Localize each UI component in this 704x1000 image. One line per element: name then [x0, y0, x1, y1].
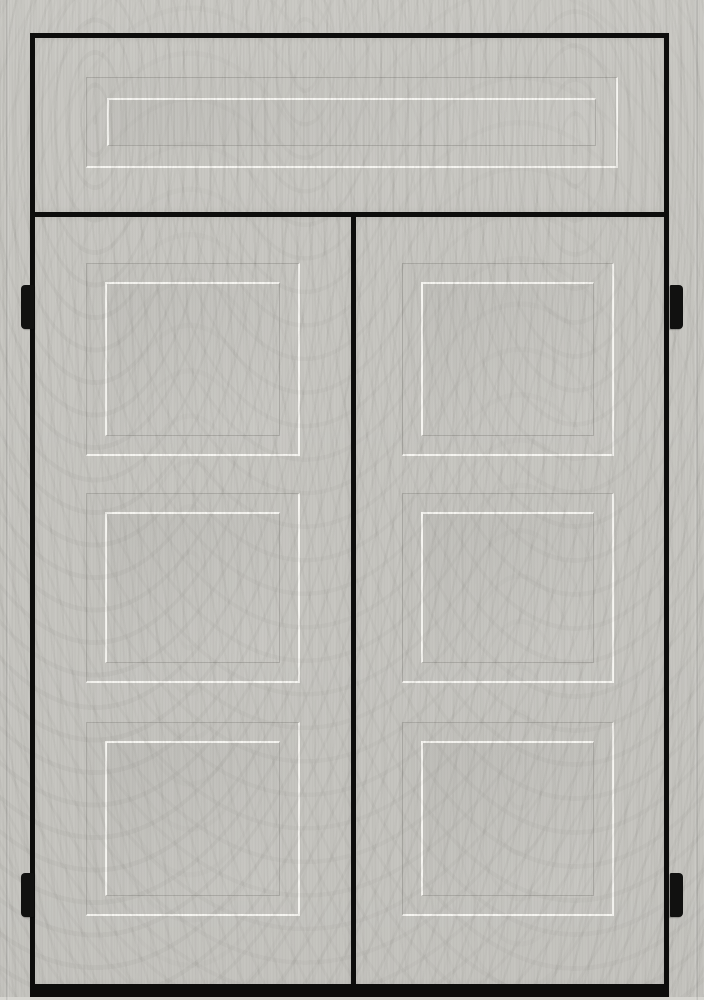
frame-right-stile [664, 33, 669, 997]
right-door-panel-middle [402, 493, 614, 683]
right-door-panel-top-face [421, 282, 594, 436]
right-door-panel-bottom [402, 722, 614, 916]
casing-right-edge-groove [695, 0, 698, 1000]
frame-left-stile [30, 33, 35, 997]
transom [35, 38, 664, 212]
bottom-kick-bar [35, 984, 664, 997]
center-meeting-stile [351, 217, 356, 984]
left-door-panel-top-face [105, 282, 280, 436]
right-door-panel-top [402, 263, 614, 456]
hinge-left-top [21, 285, 34, 329]
frame-top-rail [30, 33, 669, 38]
left-door-panel-bottom-face [105, 741, 280, 896]
hinge-left-bottom [21, 873, 34, 917]
left-door-leaf [35, 217, 351, 984]
transom-panel [86, 77, 618, 168]
hinge-right-top [670, 285, 683, 329]
right-door-panel-middle-face [421, 512, 594, 663]
double-door-product-photo [0, 0, 704, 1000]
left-door-panel-middle [86, 493, 300, 683]
casing-left-edge-groove [6, 0, 9, 1000]
left-door-panel-bottom [86, 722, 300, 916]
left-door-panel-top [86, 263, 300, 456]
right-door-leaf [356, 217, 664, 984]
transom-divider-rail [35, 212, 664, 217]
left-door-panel-middle-face [105, 512, 280, 663]
transom-panel-face [107, 98, 596, 146]
hinge-right-bottom [670, 873, 683, 917]
right-door-panel-bottom-face [421, 741, 594, 896]
